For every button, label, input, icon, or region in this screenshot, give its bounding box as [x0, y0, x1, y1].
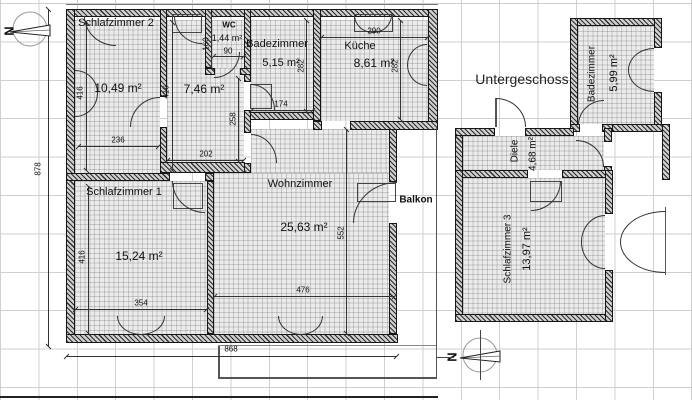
- dimension-line: [172, 22, 173, 171]
- floor-plan-canvas: 878 868 416 416 236 160 90 174 282 290 2…: [0, 0, 692, 400]
- wall-s3-bottom: [455, 314, 613, 322]
- area-label-wohnzimmer: 25,63 m²: [280, 220, 327, 234]
- balkon-outer-line: [436, 126, 437, 378]
- wall-diele-top: [455, 128, 495, 136]
- balkon-left-line: [218, 345, 220, 378]
- page-title: Untergeschoss: [475, 71, 568, 87]
- dimension-label: 290: [367, 27, 380, 36]
- area-label-wc: 1,44 m²: [212, 33, 243, 43]
- room-label-diele: Diele: [510, 140, 521, 163]
- wall-s3-right: [605, 270, 613, 322]
- dimension-line: [66, 356, 397, 357]
- dimension-label: 476: [296, 286, 309, 295]
- room-label-badezimmer-ug: Badezimmer: [587, 46, 598, 102]
- dimension-line: [306, 20, 307, 112]
- dimension-label: 258: [229, 112, 238, 125]
- area-label-schlafzimmer3: 13,97 m²: [521, 227, 533, 270]
- door-frame-line: [665, 207, 666, 275]
- room-label-kueche: Küche: [344, 40, 375, 52]
- balkon-top-line: [218, 345, 436, 346]
- wall-badug-right: [654, 18, 662, 48]
- wall-s3-right: [605, 170, 613, 214]
- wall-s2-flur: [160, 9, 167, 97]
- area-label-schlafzimmer1: 15,24 m²: [115, 249, 162, 263]
- dimension-label: 416: [78, 250, 87, 263]
- dimension-line: [167, 160, 244, 161]
- dimension-label: 416: [162, 85, 171, 98]
- wall-kueche-bottom: [313, 121, 322, 130]
- dimension-line: [48, 9, 49, 347]
- compass-rose-bottom: [458, 335, 504, 375]
- wall-wc-bottom: [240, 68, 251, 75]
- dimension-line: [400, 20, 401, 120]
- dimension-line: [213, 56, 244, 57]
- dimension-label: 878: [34, 162, 43, 175]
- room-label-schlafzimmer1: Schlafzimmer 1: [86, 186, 162, 198]
- wall-wohn-right: [389, 129, 397, 182]
- dimension-line: [238, 78, 239, 162]
- wall-bad-kueche: [313, 9, 321, 121]
- area-label-diele: 4,68 m²: [528, 137, 539, 171]
- dimension-line: [346, 129, 347, 334]
- area-label-kueche: 8,61 m²: [354, 56, 395, 70]
- dimension-line: [78, 146, 159, 147]
- wall-diele-top: [525, 128, 574, 136]
- area-label-schlafzimmer2: 10,49 m²: [94, 81, 141, 95]
- room-label-schlafzimmer2: Schlafzimmer 2: [78, 17, 154, 29]
- room-label-balkon: Balkon: [399, 195, 432, 206]
- area-label-flur: 7,46 m²: [184, 82, 225, 96]
- dimension-line: [214, 296, 395, 297]
- dimension-label: 416: [76, 86, 85, 99]
- dimension-label: 868: [224, 345, 237, 354]
- room-label-schlafzimmer3: Schlafzimmer 3: [503, 215, 514, 284]
- door-arc: [620, 211, 665, 242]
- dimension-label: 552: [337, 226, 346, 239]
- wall-badug-top: [570, 18, 662, 26]
- compass-axis-line: [480, 330, 481, 380]
- wall-s3-left: [455, 170, 463, 322]
- dimension-line: [321, 37, 428, 38]
- wall-flur-bad: [244, 163, 251, 173]
- door-arc: [496, 98, 526, 127]
- dimension-label: 160: [202, 37, 211, 50]
- dimension-label: 202: [199, 150, 212, 159]
- room-label-badezimmer: Badezimmer: [246, 38, 308, 50]
- wall-entry-right: [662, 124, 670, 180]
- north-letter: N: [2, 26, 17, 35]
- dimension-label: 236: [111, 136, 124, 145]
- wall-kueche-right: [428, 9, 438, 129]
- wall-diele-right: [604, 128, 612, 142]
- area-label-badezimmer-ug: 5,99 m²: [608, 54, 620, 91]
- border-line: [0, 396, 438, 398]
- dimension-line: [88, 186, 89, 334]
- room-label-wohnzimmer: Wohnzimmer: [268, 178, 333, 190]
- top-reference-line: [66, 4, 438, 5]
- wall-wohn-right: [389, 223, 397, 334]
- compass-axis-line: [436, 357, 454, 358]
- dimension-label: 354: [134, 299, 147, 308]
- balkon-bottom-line: [218, 377, 437, 379]
- area-label-badezimmer: 5,15 m²: [262, 57, 299, 69]
- wall-s1-right: [207, 181, 214, 334]
- dimension-label: 174: [274, 100, 287, 109]
- wall-s3-top: [455, 170, 528, 178]
- door-arc: [620, 242, 665, 273]
- wall-s1-top: [205, 173, 214, 181]
- dimension-line: [86, 22, 87, 171]
- wall-badug-left: [570, 18, 578, 132]
- wall-flur-bad: [244, 110, 251, 133]
- wall-s1-top: [66, 173, 170, 181]
- dimension-label: 90: [224, 47, 233, 56]
- dimension-line: [75, 309, 207, 310]
- room-label-wc: WC: [222, 21, 235, 30]
